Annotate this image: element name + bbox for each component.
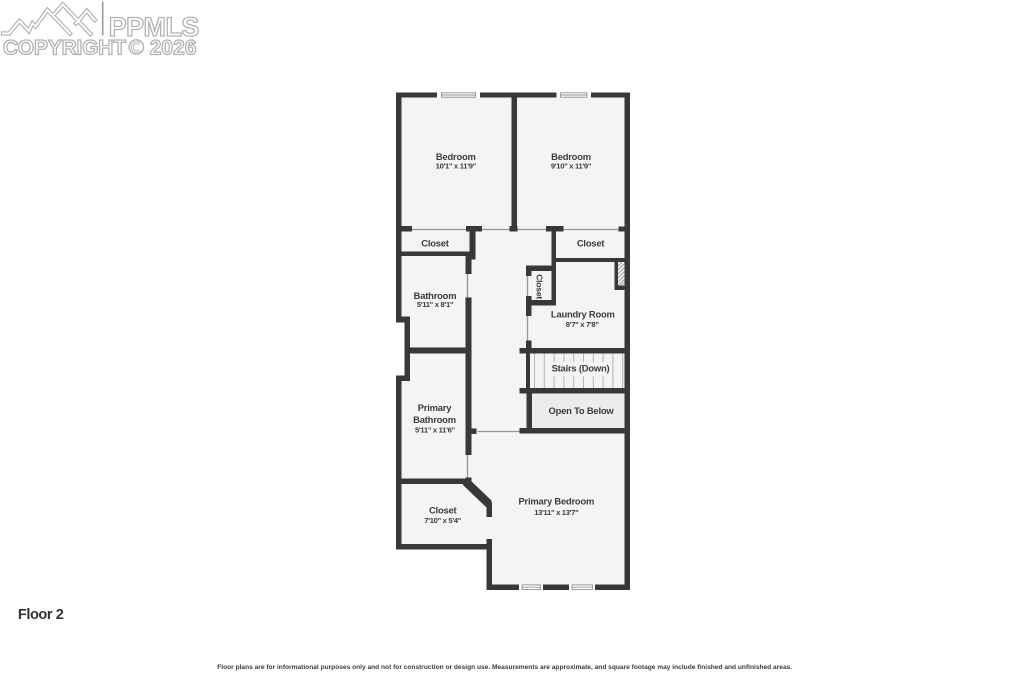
svg-text:Closet: Closet [429, 504, 457, 515]
svg-text:9'10" x 11'9": 9'10" x 11'9" [551, 161, 592, 170]
svg-text:8'7" x 7'8": 8'7" x 7'8" [566, 320, 600, 329]
svg-text:7'10" x 5'4": 7'10" x 5'4" [424, 516, 461, 525]
svg-text:Laundry Room: Laundry Room [551, 308, 615, 319]
svg-text:13'11" x 13'7": 13'11" x 13'7" [534, 508, 579, 517]
svg-text:5'11" x 11'6": 5'11" x 11'6" [415, 425, 456, 434]
svg-text:Primary: Primary [418, 402, 453, 413]
svg-text:Primary Bedroom: Primary Bedroom [518, 495, 594, 506]
svg-text:Bedroom: Bedroom [551, 151, 591, 162]
svg-text:Bathroom: Bathroom [413, 414, 456, 425]
svg-text:Closet: Closet [577, 237, 605, 248]
svg-text:2026: 2026 [150, 36, 197, 59]
svg-text:Closet: Closet [421, 237, 449, 248]
svg-text:Stairs (Down): Stairs (Down) [552, 362, 610, 373]
svg-text:Floor 2: Floor 2 [18, 607, 64, 623]
svg-text:Closet: Closet [535, 274, 545, 299]
svg-text:Open To Below: Open To Below [549, 405, 615, 416]
svg-text:5'11" x 8'1": 5'11" x 8'1" [417, 300, 454, 309]
svg-text:10'1" x 11'9": 10'1" x 11'9" [436, 161, 477, 170]
svg-text:Floor plans are for informatio: Floor plans are for informational purpos… [217, 664, 792, 671]
svg-text:Bedroom: Bedroom [436, 151, 476, 162]
svg-text:COPYRIGHT: COPYRIGHT [3, 36, 126, 59]
